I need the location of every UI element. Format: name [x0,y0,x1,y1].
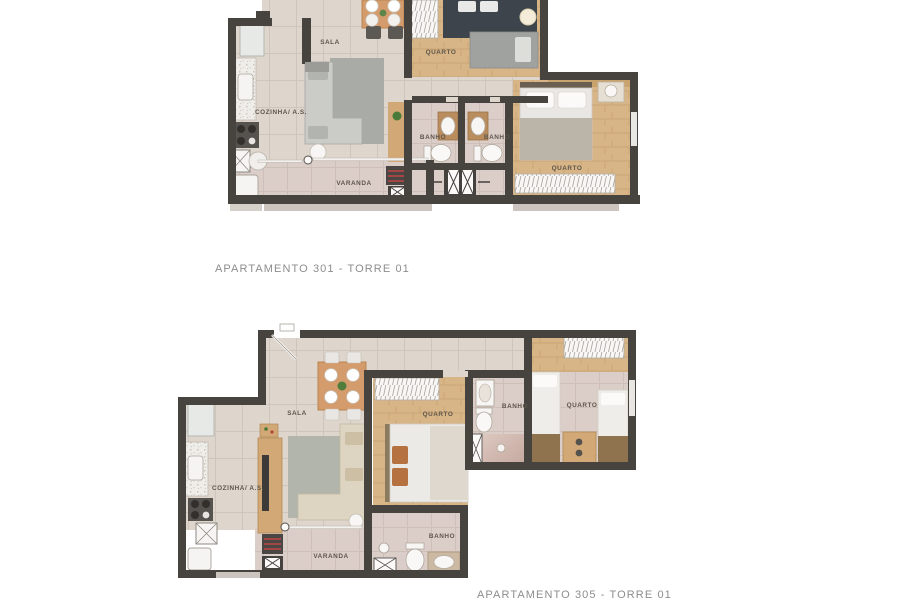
dining-set [318,352,366,420]
bed-double [520,82,592,160]
nightstand [563,432,596,464]
wardrobe-hatch [375,378,439,400]
plant [393,112,402,121]
room-label: QUARTO [567,402,598,409]
window [629,380,635,416]
cabinet [374,558,396,572]
room-label: BANHO [420,134,446,141]
laundry-tub [234,175,258,198]
window [631,112,637,146]
kitchen-sink [238,74,253,100]
glass-door [288,526,362,529]
room-label: BANHO [429,533,455,540]
room-label: COZINHA/ A.S. [212,485,264,492]
door-frame [280,324,294,331]
caption-apartamento-305: APARTAMENTO 305 - TORRE 01 [477,589,672,601]
bed-double [385,424,468,502]
tv-wall [302,18,311,64]
kitchen-sink [188,456,203,480]
side-table [310,144,326,160]
sofa-pillow [345,432,363,445]
floor-plan-301[interactable]: SALACOZINHA/ A.S.QUARTOBANHOBANHOQUARTOV… [228,0,640,211]
floor-plans-canvas: SALACOZINHA/ A.S.QUARTOBANHOBANHOQUARTOV… [0,0,900,600]
tv [262,455,269,511]
window [216,572,260,578]
room-label: BANHO [484,134,510,141]
room-label: BANHO [502,403,528,410]
room-label: QUARTO [426,49,457,56]
sofa-pillow [308,126,328,139]
room-label: SALA [287,410,307,417]
washer [196,523,217,544]
caption-apartamento-301: APARTAMENTO 301 - TORRE 01 [215,263,410,275]
fridge [240,24,264,56]
bed-single [530,372,560,464]
room-label: SALA [320,39,340,46]
toilet [476,408,492,432]
page: { "page": { "background": "#ffffff" }, "… [0,0,900,600]
shelf [260,424,278,437]
lamp [520,9,536,25]
room-label: QUARTO [552,165,583,172]
toilet [474,145,502,162]
duct-shaft [262,556,283,570]
floor-plan-305[interactable]: SALACOZINHA/ A.S.QUARTOBANHOQUARTOVARAND… [178,324,636,578]
stove [234,122,259,148]
bed-single [598,390,628,464]
room-label: QUARTO [423,411,454,418]
vanity [428,552,460,573]
pedestal-sink [379,543,389,553]
toilet [406,543,424,571]
tv-cabinet [305,62,329,72]
room-label: VARANDA [336,180,371,187]
stove [188,498,213,521]
sofa-pillow [345,468,363,481]
room-label: COZINHA/ A.S. [255,109,307,116]
grill [262,534,283,554]
laundry-tub [188,548,211,570]
grill [386,166,407,185]
fridge [188,402,214,436]
wardrobe-hatch [408,0,438,38]
wardrobe-hatch [515,174,615,193]
lamp [605,85,617,97]
room-label: VARANDA [313,553,348,560]
